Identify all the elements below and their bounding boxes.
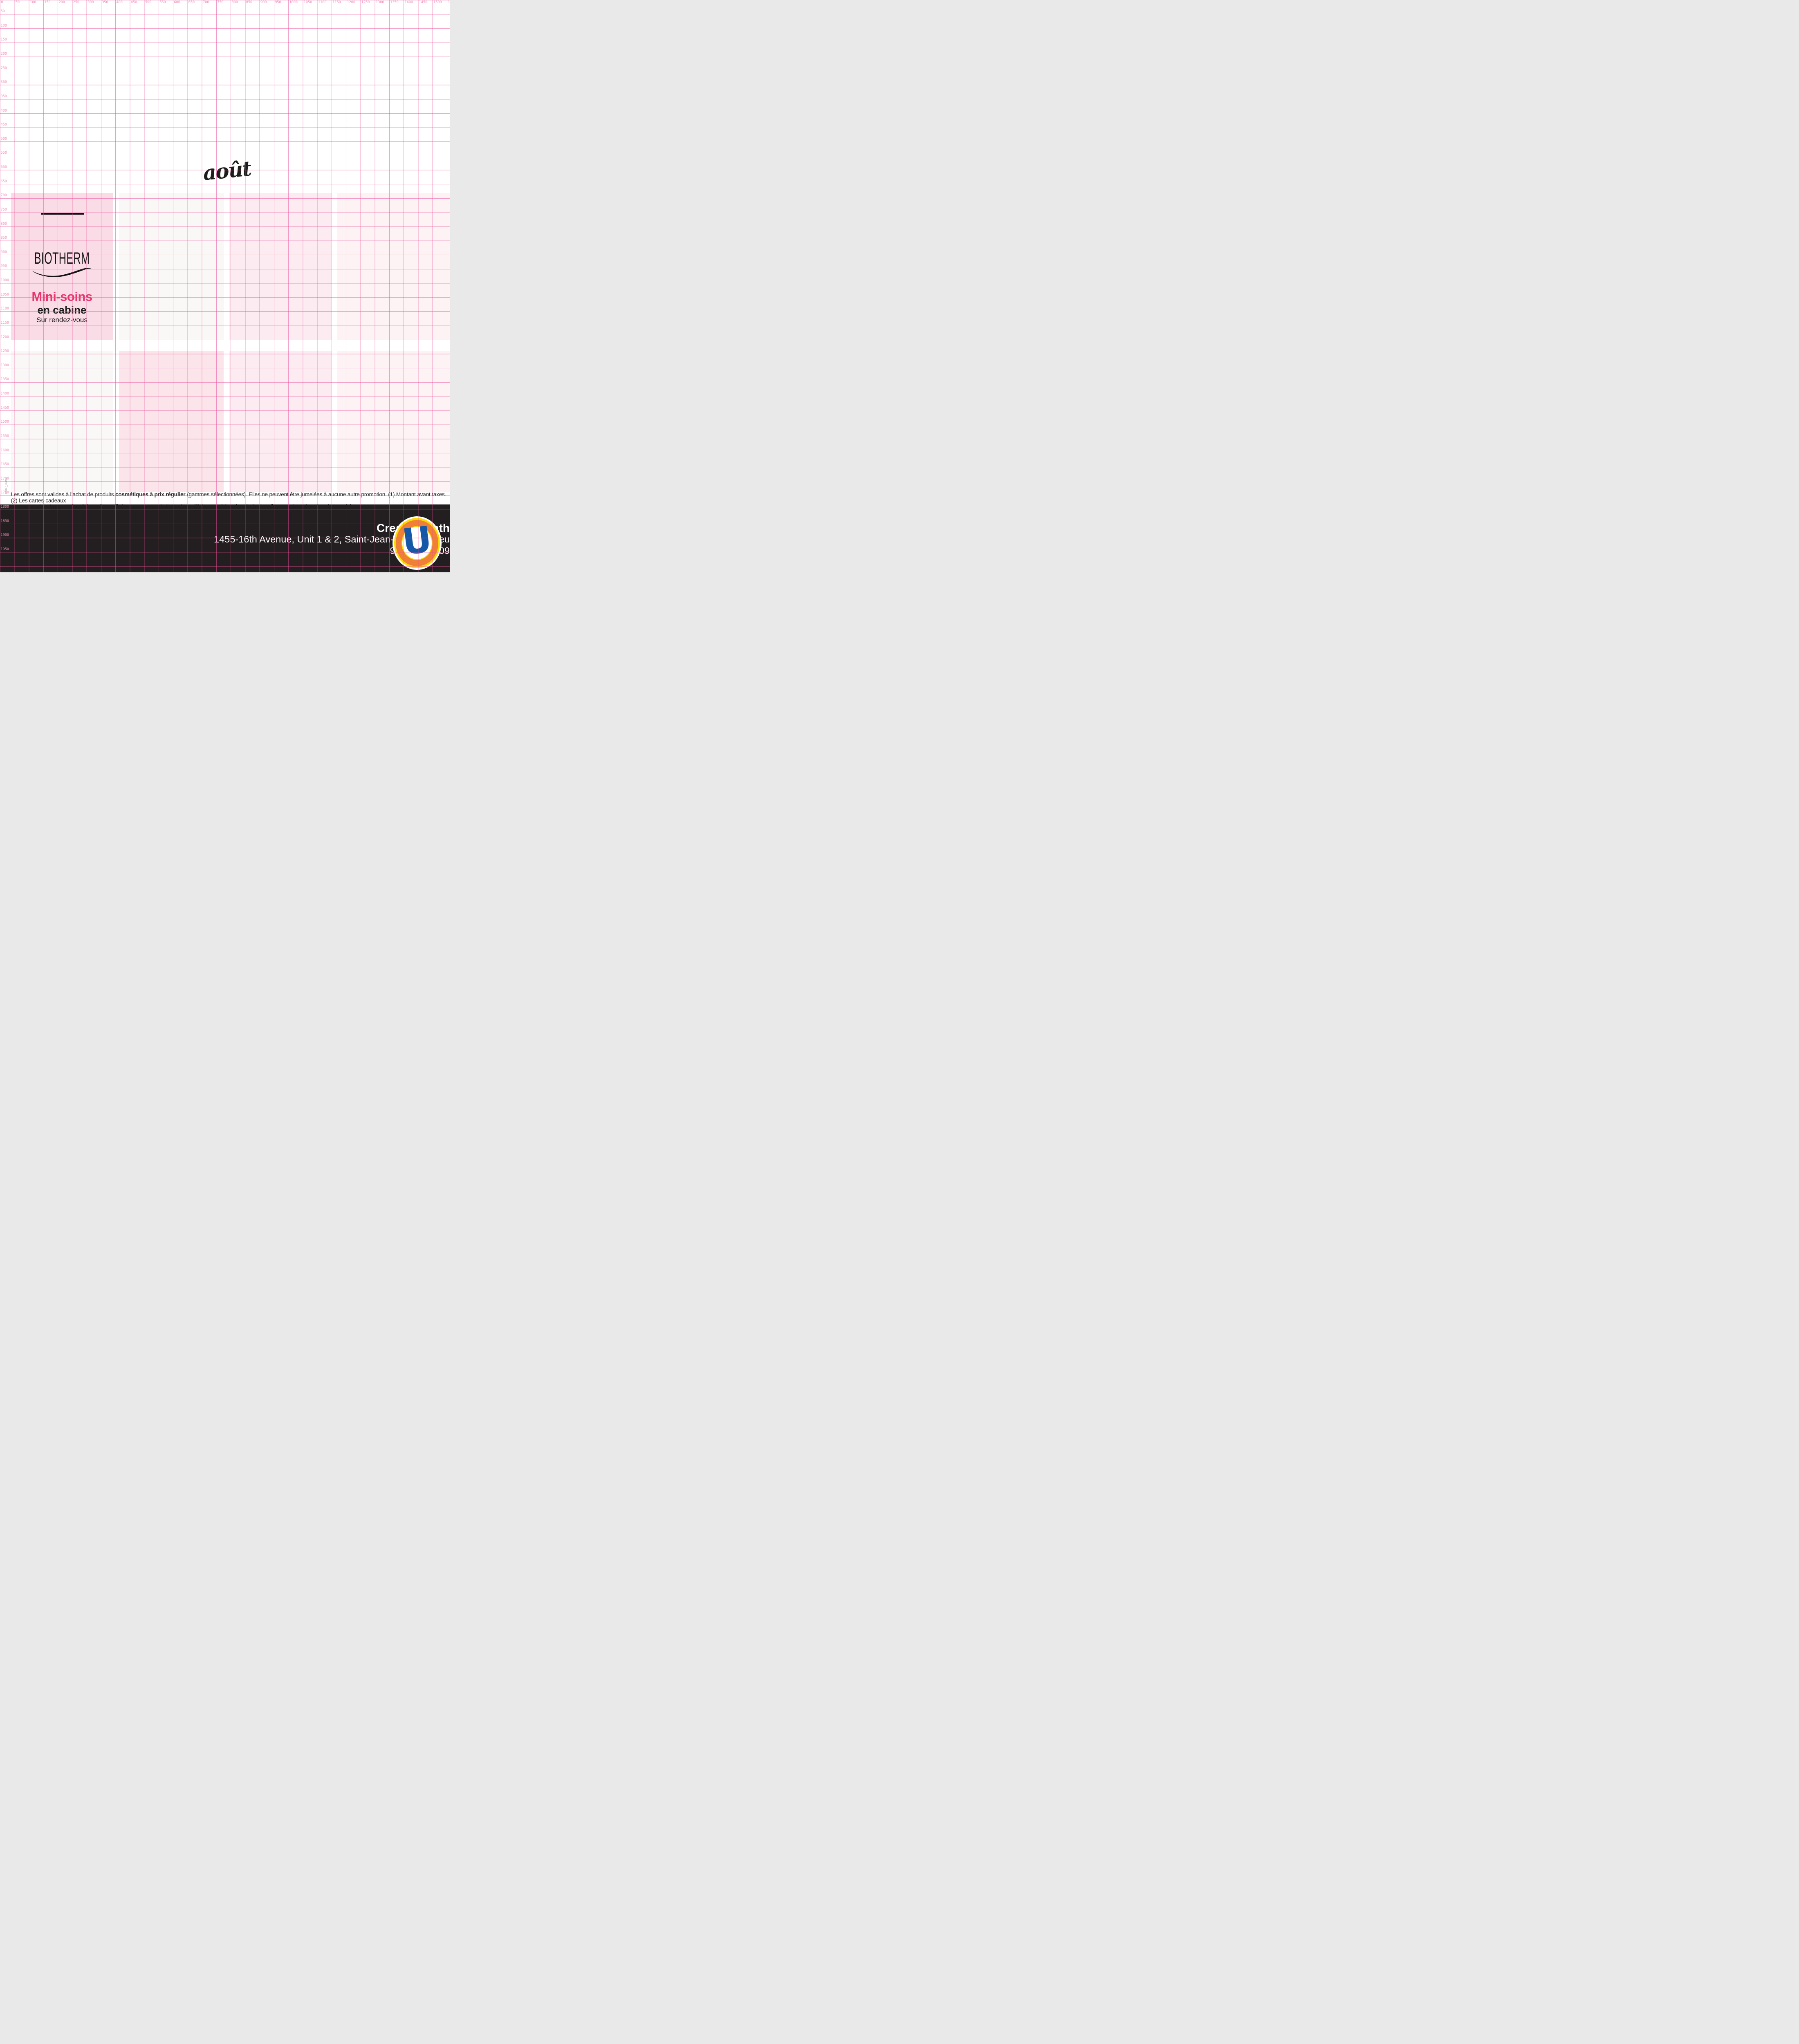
- legal-line1-bold: cosmétiques à prix régulier: [115, 491, 186, 498]
- legal-text: Les offres sont valides à l’achat de pro…: [11, 492, 449, 510]
- dash-rule: [41, 213, 84, 215]
- placeholder-row2-col4: [337, 351, 450, 492]
- biotherm-card: BIOTHERM Mini-soins en cabine Sur rendez…: [11, 193, 113, 340]
- placeholder-row2-col1: [11, 351, 114, 492]
- placeholder-row1-col2: [119, 193, 224, 340]
- placeholder-row1-col4: [337, 193, 450, 340]
- placeholder-row2-col2: [119, 351, 224, 492]
- pharmacy-logo: U: [393, 516, 442, 570]
- biotherm-offer-note: Sur rendez-vous: [11, 316, 113, 324]
- logo-u-letter: U: [389, 511, 444, 570]
- legal-line2: reçues pendant la promotion doivent être…: [11, 503, 357, 509]
- biotherm-offer-title: Mini-soins: [11, 289, 113, 304]
- biotherm-swoosh-icon: [32, 267, 92, 278]
- placeholder-row1-col3: [229, 193, 332, 340]
- biotherm-offer-subtitle: en cabine: [11, 304, 113, 316]
- proof-page: août BIOTHERM Mini-soins en cabine Sur r…: [0, 0, 450, 572]
- placeholder-row2-col3: [229, 351, 332, 492]
- biotherm-logotype: BIOTHERM: [29, 249, 94, 268]
- legal-line1-pre: Les offres sont valides à l’achat de pro…: [11, 491, 116, 498]
- month-label: août: [201, 156, 253, 185]
- job-code: P02167_D14227: [5, 467, 8, 494]
